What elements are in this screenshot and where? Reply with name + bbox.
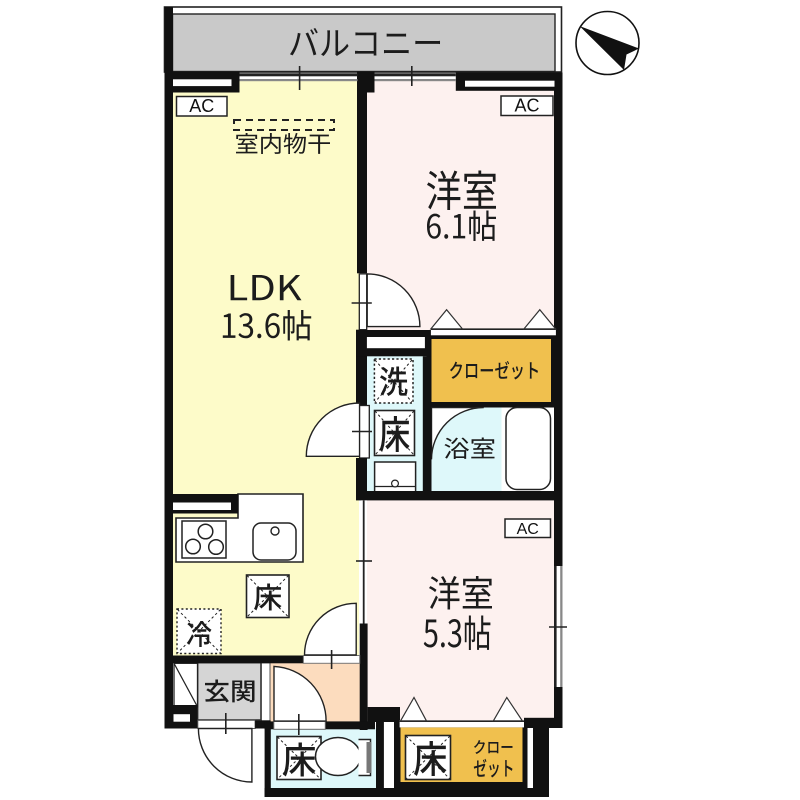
svg-text:AC: AC	[517, 521, 539, 538]
svg-text:AC: AC	[189, 96, 214, 116]
svg-text:AC: AC	[514, 96, 539, 116]
